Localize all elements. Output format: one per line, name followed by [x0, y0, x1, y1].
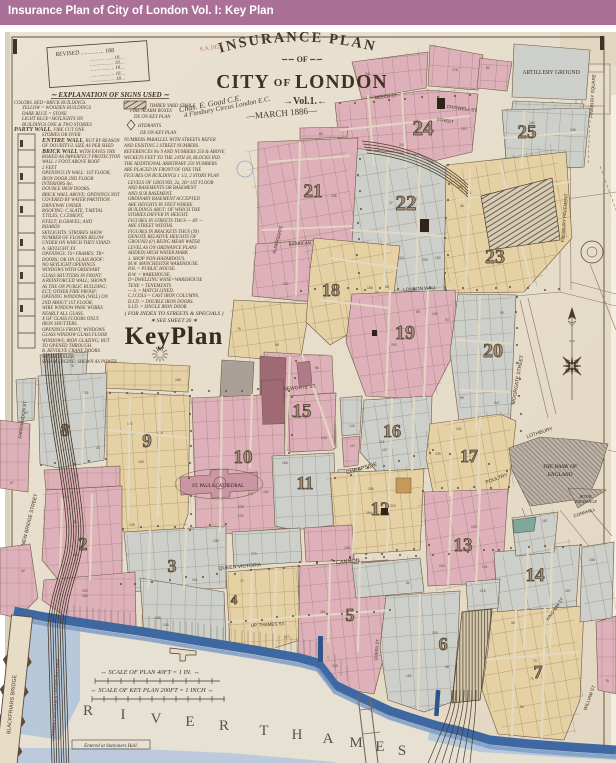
svg-text:166: 166	[367, 286, 373, 290]
svg-text:COVERED BY WATER PARTITION.: COVERED BY WATER PARTITION.	[42, 198, 111, 203]
svg-text:22: 22	[396, 191, 417, 215]
svg-text:ADDED) HIGH WATER MARK: ADDED) HIGH WATER MARK	[127, 251, 189, 256]
svg-text:107: 107	[382, 448, 388, 452]
svg-text:↔ SCALE OF KEY PLAN 200FT = 1: ↔ SCALE OF KEY PLAN 200FT = 1 INCH ↔	[90, 687, 214, 694]
svg-text:FIRE ALARM BOXES: FIRE ALARM BOXES	[129, 109, 172, 114]
svg-text:REFERENCES No 9 AND NUMBERS 25: REFERENCES No 9 AND NUMBERS 250 & ABOVE	[123, 150, 225, 155]
svg-text:V: V	[151, 711, 162, 727]
svg-text:CITY OF LONDON: CITY OF LONDON	[216, 72, 388, 93]
svg-text:99: 99	[460, 396, 464, 400]
svg-text:161: 161	[263, 490, 269, 494]
svg-text:82: 82	[486, 66, 490, 70]
svg-text:62: 62	[21, 569, 25, 573]
svg-text:M: M	[349, 735, 362, 751]
svg-text:155: 155	[368, 487, 374, 491]
svg-text:DOUBLE IRON DOORS.: DOUBLE IRON DOORS.	[41, 187, 90, 192]
svg-text:THE ADDITIONAL ARBITRARY 250 N: THE ADDITIONAL ARBITRARY 250 NUMBERS	[124, 162, 218, 167]
svg-text:25: 25	[518, 122, 537, 143]
svg-text:21: 21	[304, 181, 323, 202]
svg-text:Entered at Stationers Hall.: Entered at Stationers Hall.	[83, 744, 138, 749]
svg-text:H: H	[292, 727, 303, 743]
svg-text:156: 156	[82, 594, 88, 598]
svg-text:158: 158	[138, 460, 144, 464]
svg-text:151: 151	[320, 610, 326, 614]
svg-text:WIRE WINDOW PANE WORKS: WIRE WINDOW PANE WORKS	[42, 306, 103, 311]
svg-text:144: 144	[349, 424, 355, 428]
svg-text:AND EXISTING 2 STREET NUMBERS.: AND EXISTING 2 STREET NUMBERS.	[123, 144, 199, 149]
svg-text:166: 166	[282, 461, 288, 465]
svg-text:33: 33	[96, 446, 100, 450]
svg-text:DE ON KEY PLAN: DE ON KEY PLAN	[133, 115, 171, 120]
svg-text:17: 17	[460, 446, 478, 466]
svg-text:S: S	[398, 743, 406, 759]
svg-text:T.TILES, C.CEMENT,: T.TILES, C.CEMENT,	[42, 214, 83, 219]
svg-text:236: 236	[589, 558, 595, 562]
svg-text:PARTY WALL, FIRE CUT ONE: PARTY WALL, FIRE CUT ONE	[14, 126, 84, 133]
svg-text:GROUND (0') BEING MEAN WATER: GROUND (0') BEING MEAN WATER	[128, 240, 200, 245]
svg-text:140: 140	[432, 312, 438, 316]
svg-text:15: 15	[293, 401, 312, 422]
svg-text:76: 76	[237, 327, 241, 331]
svg-text:150: 150	[435, 256, 441, 260]
svg-text:10: 10	[234, 447, 253, 468]
svg-text:54: 54	[445, 318, 449, 322]
svg-text:78: 78	[605, 679, 609, 683]
svg-text:176: 176	[452, 68, 458, 72]
svg-text:ARE PLACED IN FRONT OF ONE THE: ARE PLACED IN FRONT OF ONE THE	[123, 168, 201, 173]
svg-text:I: I	[121, 707, 126, 723]
svg-text:ENGLAND: ENGLAND	[546, 472, 572, 478]
svg-text:IRON SHUTTERS.: IRON SHUTTERS.	[41, 322, 78, 327]
svg-text:GLASS WINDOW GLASS FLOOR: GLASS WINDOW GLASS FLOOR	[42, 333, 107, 338]
svg-text:UNDER ON WHICH THEY STAND:: UNDER ON WHICH THEY STAND:	[42, 241, 112, 246]
svg-text:37: 37	[389, 201, 393, 205]
svg-text:187: 187	[565, 589, 571, 593]
svg-text:57: 57	[10, 481, 14, 485]
svg-text:182: 182	[406, 674, 412, 678]
svg-text:3: 3	[168, 556, 177, 576]
svg-text:113: 113	[283, 282, 289, 286]
svg-text:OPENINGS IN WALL: 1ST FLOOR,: OPENINGS IN WALL: 1ST FLOOR,	[42, 171, 111, 176]
svg-text:LIGHT BLUE=SKYLIGHTS ON: LIGHT BLUE=SKYLIGHTS ON	[21, 117, 84, 122]
svg-text:A REINFORCED WALL; SHOWN: A REINFORCED WALL; SHOWN	[41, 279, 107, 284]
svg-text:11: 11	[296, 473, 313, 493]
svg-text:WALL 1 FOOT ABOVE ROOF: WALL 1 FOOT ABOVE ROOF	[42, 160, 100, 165]
svg-text:100: 100	[432, 631, 438, 635]
svg-text:STORIES DIFFER IN HEIGHT.: STORIES DIFFER IN HEIGHT.	[128, 213, 189, 218]
svg-text:18: 18	[322, 280, 340, 300]
svg-text:16: 16	[383, 421, 401, 441]
svg-text:E: E	[375, 739, 384, 755]
svg-text:BOARDS: BOARDS	[42, 225, 60, 230]
svg-text:R: R	[219, 718, 229, 734]
svg-text:36: 36	[460, 204, 464, 208]
svg-text:14: 14	[526, 565, 546, 586]
svg-text:WINDOWS WITH ORDINARY: WINDOWS WITH ORDINARY	[42, 268, 101, 273]
svg-text:T: T	[259, 723, 268, 739]
svg-text:237: 237	[248, 492, 254, 496]
svg-text:46: 46	[445, 665, 449, 669]
svg-text:WICKETS FEET TO THE 24TH 28, B: WICKETS FEET TO THE 24TH 28, BLOCKS IND.	[124, 156, 221, 161]
svg-text:165: 165	[175, 378, 181, 382]
svg-text:ARE STREET WIDTHS.: ARE STREET WIDTHS.	[127, 224, 173, 229]
svg-text:235: 235	[238, 505, 244, 509]
svg-text:6: 6	[439, 634, 448, 654]
svg-text:19: 19	[395, 322, 415, 344]
svg-text:13: 13	[454, 535, 473, 556]
svg-text:109: 109	[129, 523, 135, 527]
svg-text:E: E	[185, 714, 194, 730]
svg-text:186: 186	[155, 616, 161, 620]
svg-text:216: 216	[480, 589, 486, 593]
svg-text:117: 117	[350, 444, 356, 448]
svg-text:235: 235	[331, 194, 337, 198]
svg-text:167: 167	[542, 519, 548, 523]
svg-text:63: 63	[319, 132, 323, 136]
svg-text:B. REVOLVE CRANE DOORS.: B. REVOLVE CRANE DOORS.	[42, 349, 101, 354]
svg-text:4: 4	[231, 592, 238, 607]
svg-text:STEAM ENGINE; SHOWN AS POWER: STEAM ENGINE; SHOWN AS POWER	[42, 360, 117, 365]
svg-text:ENTIRE WALL, BUT BY REASON: ENTIRE WALL, BUT BY REASON	[41, 137, 120, 144]
svg-text:D=DWELLING WHSE=WAREHOUSE: D=DWELLING WHSE=WAREHOUSE	[127, 278, 202, 283]
svg-text:103: 103	[439, 564, 445, 568]
svg-text:P.H. = PUBLIC HOUSE.: P.H. = PUBLIC HOUSE.	[127, 267, 176, 272]
svg-text:∽∽ OF ∽∽: ∽∽ OF ∽∽	[281, 55, 323, 64]
svg-text:136: 136	[344, 546, 350, 550]
svg-text:FIGURES ON BUILDINGS 1 1/2, 2: FIGURES ON BUILDINGS 1 1/2, 2 STORY PLAN	[123, 174, 220, 179]
svg-text:200: 200	[82, 589, 88, 593]
svg-text:20: 20	[483, 340, 503, 362]
svg-text:↔ SCALE OF PLAN 40FT = 1 IN. ↔: ↔ SCALE OF PLAN 40FT = 1 IN. ↔	[100, 669, 199, 676]
svg-text:NUMBERS PARALLEL WITH STREETS: NUMBERS PARALLEL WITH STREETS REFER	[123, 138, 216, 143]
svg-text:151: 151	[456, 427, 462, 431]
svg-text:247: 247	[494, 401, 500, 405]
svg-text:86: 86	[315, 366, 319, 370]
svg-text:S.I.D. = SINGLE IRON DOOR: S.I.D. = SINGLE IRON DOOR	[128, 305, 187, 310]
svg-text:151: 151	[192, 578, 198, 582]
svg-text:9: 9	[142, 431, 152, 452]
svg-text:EXCHANGE: EXCHANGE	[574, 499, 597, 504]
svg-text:ORDINARY BASEMENT ACCEPTED: ORDINARY BASEMENT ACCEPTED	[128, 197, 200, 202]
svg-text:101: 101	[482, 565, 488, 569]
svg-text:50: 50	[520, 705, 524, 709]
svg-text:( FOR INDEX TO STREETS & SPECI: ( FOR INDEX TO STREETS & SPECIALS )	[125, 310, 224, 317]
svg-text:216: 216	[390, 504, 396, 508]
svg-text:THE BANK OF: THE BANK OF	[543, 464, 578, 470]
svg-text:∼ EXPLANATION OF SIGNS USED ∼: ∼ EXPLANATION OF SIGNS USED ∼	[51, 91, 171, 99]
svg-text:125: 125	[321, 436, 327, 440]
svg-text:7: 7	[534, 662, 543, 682]
svg-text:138: 138	[213, 539, 219, 543]
svg-text:HYDRANTS: HYDRANTS	[137, 124, 162, 129]
svg-text:222: 222	[238, 514, 244, 518]
svg-text:99: 99	[500, 311, 504, 315]
svg-text:DE ON KEY PLAN: DE ON KEY PLAN	[139, 131, 177, 136]
svg-text:200: 200	[461, 127, 467, 131]
svg-text:C.I.COLS = CAST IRON COLUMNS.: C.I.COLS = CAST IRON COLUMNS.	[128, 294, 199, 299]
svg-text:136: 136	[570, 128, 576, 132]
svg-text:68: 68	[275, 343, 279, 347]
svg-text:72: 72	[240, 579, 244, 583]
svg-text:YELLOW = WOODEN BUILDINGS: YELLOW = WOODEN BUILDINGS	[22, 106, 92, 111]
svg-text:24: 24	[413, 116, 435, 140]
svg-text:R: R	[83, 703, 93, 719]
svg-text:139: 139	[471, 525, 477, 529]
svg-text:105: 105	[163, 623, 169, 627]
svg-text:5: 5	[346, 605, 355, 625]
svg-text:A: A	[323, 731, 334, 747]
svg-text:239: 239	[422, 258, 428, 262]
svg-text:ARTILLERY GROUND: ARTILLERY GROUND	[522, 70, 580, 76]
svg-text:38: 38	[511, 621, 515, 625]
svg-text:KeyPlan: KeyPlan	[125, 323, 224, 350]
svg-text:239: 239	[435, 452, 441, 456]
svg-text:OPENING WINDOWS (WILL) ON: OPENING WINDOWS (WILL) ON	[42, 295, 109, 300]
svg-text:OPENINGS: TS=FRAMES; TB=: OPENINGS: TS=FRAMES; TB=	[42, 252, 105, 257]
svg-text:170: 170	[251, 552, 257, 556]
svg-text:61: 61	[406, 581, 410, 585]
svg-text:AND BASEMENTS OR BASEMENT: AND BASEMENTS OR BASEMENT	[127, 186, 197, 191]
svg-text:65: 65	[416, 310, 420, 314]
